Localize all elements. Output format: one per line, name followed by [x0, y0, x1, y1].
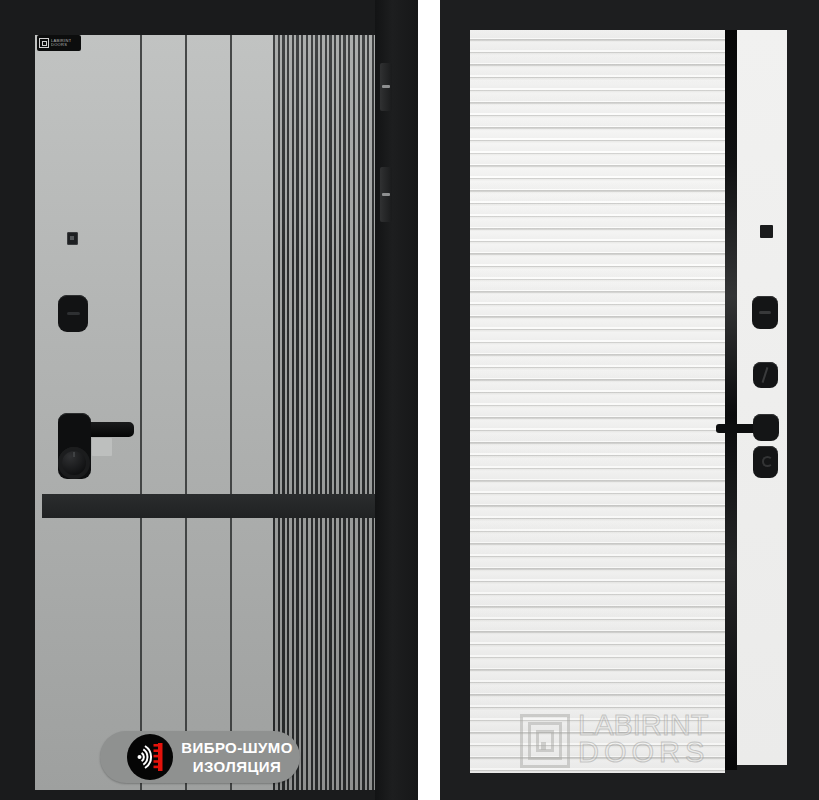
sound-insulation-badge: ВИБРО-ШУМО ИЗОЛЯЦИЯ — [100, 731, 300, 783]
door-product-image: LABIRINT DOORS — [0, 0, 819, 800]
right-door-ridged-panel — [470, 30, 725, 773]
hinge — [380, 167, 392, 222]
panel-groove-line — [185, 35, 187, 790]
left-door-photo: LABIRINT DOORS — [0, 0, 418, 800]
sound-insulation-label: ВИБРО-ШУМО ИЗОЛЯЦИЯ — [180, 738, 294, 776]
door-edge — [375, 0, 418, 800]
handle-base — [753, 414, 779, 441]
right-door-photo: LABIRINT DOORS — [440, 0, 819, 800]
thumbturn-knob — [752, 296, 778, 329]
right-door-edge-panel — [737, 30, 787, 765]
black-handle-strip — [725, 30, 737, 770]
milled-stripe-region — [273, 35, 375, 790]
handle-reflection — [92, 438, 112, 456]
peephole — [760, 225, 773, 238]
labirint-logo-icon — [39, 38, 49, 48]
panel-groove-line — [230, 35, 232, 790]
brand-badge-text: LABIRINT DOORS — [51, 39, 71, 47]
labirint-watermark: LABIRINT DOORS — [520, 712, 780, 772]
lock-cylinder-upper — [753, 362, 778, 388]
panel-groove-line — [140, 35, 142, 790]
watermark-text: LABIRINT DOORS — [578, 712, 709, 766]
lock-cylinder-lower — [753, 446, 778, 478]
watermark-line2: DOORS — [578, 739, 709, 766]
lock-knob — [58, 447, 90, 479]
watermark-line1: LABIRINT — [578, 712, 709, 739]
peephole — [67, 232, 78, 245]
hinge — [380, 63, 392, 111]
keyhole-cover — [58, 295, 88, 332]
labirint-brand-badge: LABIRINT DOORS — [37, 35, 81, 51]
decor-black-band — [42, 494, 375, 518]
left-door-gray-panel: LABIRINT DOORS — [35, 35, 375, 790]
sound-insulation-icon — [127, 734, 173, 780]
